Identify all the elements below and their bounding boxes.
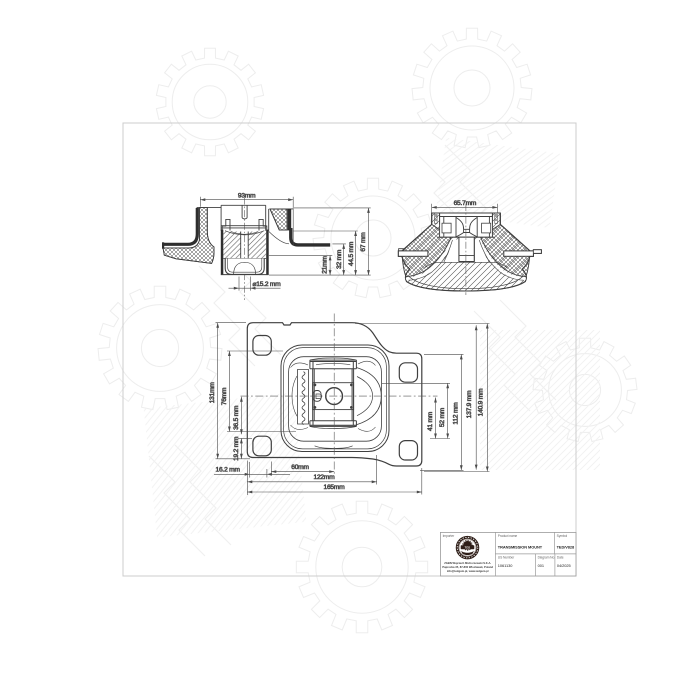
svg-text:Product name: Product name bbox=[498, 534, 518, 538]
svg-text:32 mm: 32 mm bbox=[336, 249, 343, 269]
svg-text:1061130: 1061130 bbox=[498, 563, 513, 568]
svg-text:76mm: 76mm bbox=[221, 387, 228, 405]
svg-text:16.2 mm: 16.2 mm bbox=[216, 466, 241, 473]
svg-text:112 mm: 112 mm bbox=[452, 402, 459, 425]
svg-text:52 mm: 52 mm bbox=[439, 407, 446, 427]
svg-text:41 mm: 41 mm bbox=[427, 411, 434, 431]
svg-text:65.7mm: 65.7mm bbox=[454, 200, 477, 207]
svg-text:Paprocka 35, 87-800 Wloclawek,: Paprocka 35, 87-800 Wloclawek, Poland bbox=[442, 565, 493, 569]
svg-text:info@tedgum.pl, www.tedgum.pl: info@tedgum.pl, www.tedgum.pl bbox=[447, 569, 489, 573]
svg-text:TED/V828: TED/V828 bbox=[557, 544, 575, 549]
svg-text:140.9 mm: 140.9 mm bbox=[478, 388, 485, 416]
svg-text:131mm: 131mm bbox=[209, 382, 216, 404]
svg-text:Diagram No.: Diagram No. bbox=[538, 555, 556, 559]
svg-text:Importer: Importer bbox=[443, 534, 455, 538]
svg-text:TED: TED bbox=[465, 545, 471, 549]
svg-text:TRANSMISSION MOUNT: TRANSMISSION MOUNT bbox=[498, 544, 543, 549]
svg-text:⌀15.2 mm: ⌀15.2 mm bbox=[253, 281, 282, 288]
svg-text:165mm: 165mm bbox=[324, 484, 346, 491]
svg-text:44.5 mm: 44.5 mm bbox=[348, 241, 355, 266]
svg-text:93mm: 93mm bbox=[238, 193, 256, 200]
svg-text:36.5 mm: 36.5 mm bbox=[233, 405, 240, 430]
svg-text:Symbol: Symbol bbox=[557, 534, 568, 538]
svg-text:US Number: US Number bbox=[498, 555, 515, 559]
svg-text:ZGBN Wojciech Michorzewski S.K: ZGBN Wojciech Michorzewski S.K.A. bbox=[444, 561, 491, 565]
svg-text:67 mm: 67 mm bbox=[360, 232, 367, 252]
svg-text:Date: Date bbox=[557, 555, 564, 559]
svg-text:137.9 mm: 137.9 mm bbox=[466, 390, 473, 418]
svg-text:60mm: 60mm bbox=[291, 464, 309, 471]
svg-text:001: 001 bbox=[538, 563, 544, 568]
svg-text:21mm: 21mm bbox=[322, 256, 329, 274]
svg-text:04/2025: 04/2025 bbox=[557, 563, 571, 568]
svg-text:122mm: 122mm bbox=[314, 474, 336, 481]
svg-text:19.2 mm: 19.2 mm bbox=[233, 436, 240, 461]
